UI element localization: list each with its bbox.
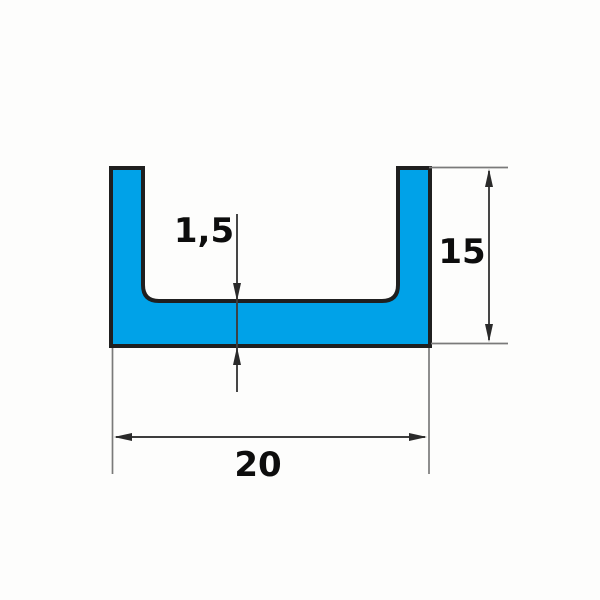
height-arrow-down-icon <box>485 324 493 342</box>
dim-height: 15 <box>429 168 508 344</box>
u-profile-shape <box>111 168 430 346</box>
dim-width: 20 <box>113 348 430 485</box>
width-arrow-right-icon <box>409 433 427 441</box>
height-arrow-up-icon <box>485 169 493 187</box>
height-label: 15 <box>438 232 485 272</box>
u-profile <box>111 168 430 346</box>
width-arrow-left-icon <box>114 433 132 441</box>
width-label: 20 <box>234 445 281 485</box>
thickness-arrow-up-icon <box>233 347 241 365</box>
thickness-arrow-down-icon <box>233 283 241 301</box>
technical-drawing: 1,5 15 20 <box>0 0 600 600</box>
drawing-canvas: 1,5 15 20 <box>0 0 600 600</box>
thickness-label: 1,5 <box>174 211 234 251</box>
